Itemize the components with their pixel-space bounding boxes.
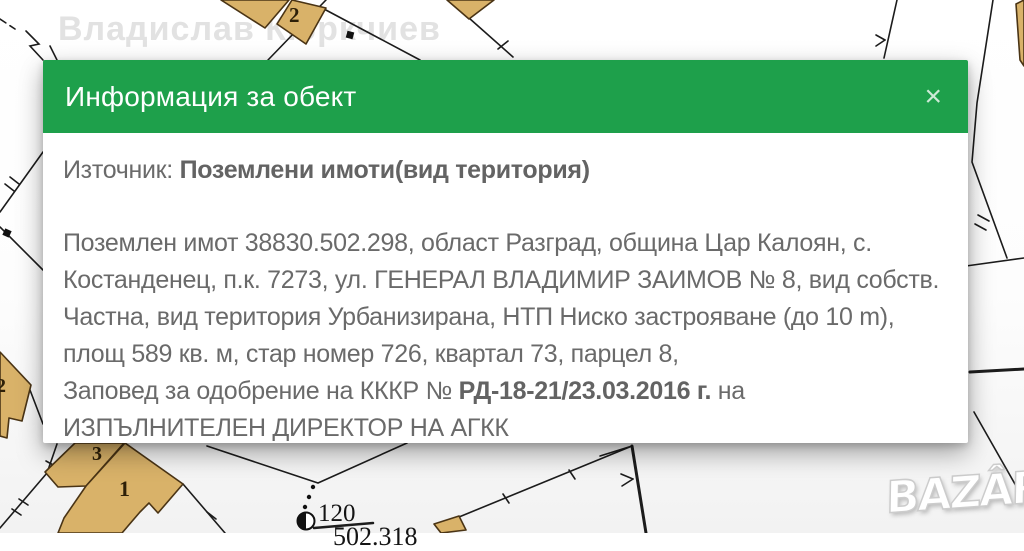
source-value: Поземлени имоти(вид територия): [180, 156, 590, 184]
bazar-logo: BAZÂR: [886, 463, 1024, 524]
source-label: Източник:: [63, 156, 173, 184]
building-number-label: 1: [119, 478, 130, 500]
dialog-body: Източник: Поземлени имоти(вид територия)…: [43, 133, 968, 447]
source-line: Източник: Поземлени имоти(вид територия): [63, 152, 946, 189]
parcel-number-label: 2: [289, 5, 300, 26]
close-icon[interactable]: ×: [920, 82, 946, 112]
info-dialog: Информация за обект × Източник: Поземлен…: [43, 60, 968, 443]
approval-order-line2: ИЗПЪЛНИТЕЛЕН ДИРЕКТОР НА АГКК: [63, 410, 946, 447]
building-number-label: 3: [92, 444, 102, 464]
dialog-header: Информация за обект ×: [43, 60, 968, 133]
dialog-title: Информация за обект: [65, 81, 356, 113]
survey-point-icon: [298, 513, 315, 530]
approval-order-line: Заповед за одобрение на КККР № РД-18-21/…: [63, 373, 946, 410]
property-description: Поземлен имот 38830.502.298, област Разг…: [63, 225, 946, 373]
parcel-number-label: 502.318: [333, 524, 418, 550]
parcel-number-label: 2: [0, 376, 6, 396]
